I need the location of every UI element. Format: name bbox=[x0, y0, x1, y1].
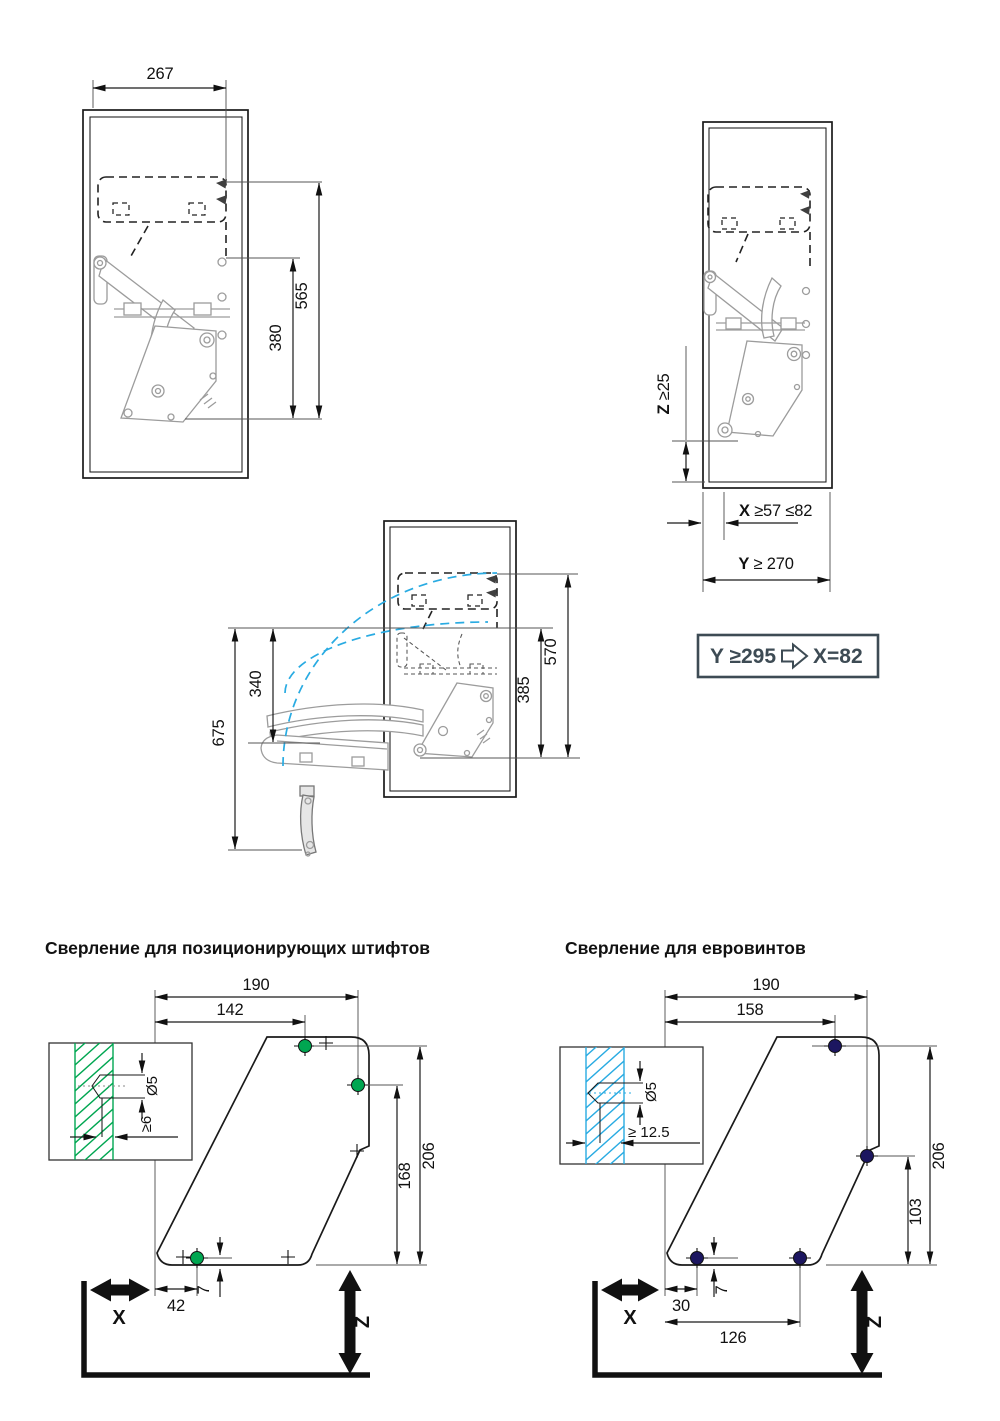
view-cabinet-closed: 267 565 380 bbox=[83, 65, 322, 478]
door-stop-wedge-icon bbox=[486, 575, 497, 584]
view-cabinet-open: 675 340 570 385 bbox=[210, 521, 580, 856]
screw-hole bbox=[824, 1036, 846, 1056]
door-folded-dashed bbox=[708, 187, 810, 266]
door-stop-wedge-icon bbox=[800, 206, 810, 215]
dim-label-190: 190 bbox=[243, 976, 270, 994]
dim-label-depth: ≥ 12.5 bbox=[628, 1124, 670, 1141]
dim-label-570: 570 bbox=[542, 639, 560, 666]
mechanism-ghost-dashed bbox=[397, 633, 497, 674]
door-stop-wedge-icon bbox=[216, 179, 227, 189]
mechanism-plate bbox=[414, 683, 493, 757]
dim-label-158: 158 bbox=[737, 1001, 764, 1019]
dim-label-103: 103 bbox=[907, 1199, 925, 1226]
dim-clearance-z: Z ≥25 bbox=[655, 346, 738, 482]
dim-label-dia: Ø5 bbox=[643, 1082, 660, 1102]
dim-label-126: 126 bbox=[720, 1329, 747, 1347]
dim-label-206: 206 bbox=[930, 1143, 948, 1170]
view-niche-requirements: Z ≥25 X ≥57 ≤82 Y ≥ 270 bbox=[655, 122, 832, 592]
door-folded-dashed bbox=[98, 177, 227, 258]
dim-label-190: 190 bbox=[753, 976, 780, 994]
door-open bbox=[261, 735, 388, 770]
dim-label-y: Y ≥ 270 bbox=[738, 555, 793, 573]
x-distance-arrow-icon bbox=[90, 1279, 150, 1302]
door-stop-wedge-icon bbox=[800, 190, 810, 199]
dim-label-380: 380 bbox=[267, 325, 285, 352]
cabinet-outer bbox=[83, 110, 248, 478]
door-stop-wedge-icon bbox=[486, 589, 497, 598]
axis-label-x: X bbox=[112, 1307, 126, 1329]
section-title-euro: Сверление для евровинтов bbox=[565, 938, 806, 958]
technical-drawing-page: 267 565 380 bbox=[0, 0, 1000, 1421]
x-distance-arrow-icon bbox=[601, 1279, 659, 1302]
dim-label-168: 168 bbox=[396, 1163, 414, 1190]
formula-box: Y ≥295 X=82 bbox=[698, 635, 878, 677]
dim-label-142: 142 bbox=[217, 1001, 244, 1019]
handle-arm bbox=[300, 786, 316, 856]
dim-label-z: Z ≥25 bbox=[655, 373, 673, 414]
section-title-pins: Сверление для позиционирующих штифтов bbox=[45, 938, 430, 958]
dim-label-206: 206 bbox=[420, 1143, 438, 1170]
dim-distance-x: X ≥57 ≤82 bbox=[667, 492, 812, 540]
lift-mechanism bbox=[704, 271, 810, 437]
axis-label-z: Z bbox=[352, 1316, 374, 1328]
plus-mark-icon bbox=[350, 1144, 364, 1158]
dim-width-267: 267 bbox=[93, 65, 226, 180]
axis-label-x: X bbox=[623, 1307, 637, 1329]
dim-label-7: 7 bbox=[195, 1285, 213, 1294]
pin-hole bbox=[294, 1036, 314, 1056]
plus-mark-icon bbox=[281, 1250, 295, 1264]
pin-holes bbox=[176, 1036, 368, 1268]
lift-mechanism bbox=[94, 256, 230, 422]
drill-detail-inset-euro: Ø5 ≥ 12.5 bbox=[560, 1022, 703, 1199]
dim-label-7: 7 bbox=[713, 1285, 731, 1294]
dim-label-30: 30 bbox=[672, 1297, 690, 1315]
dim-label-675: 675 bbox=[210, 720, 228, 747]
dim-label-42: 42 bbox=[167, 1297, 185, 1315]
travel-arc-inner bbox=[285, 622, 488, 693]
axis-label-z: Z bbox=[864, 1316, 886, 1328]
drill-template-euro: Сверление для евровинтов 190 158 bbox=[560, 938, 948, 1375]
pin-hole bbox=[347, 1075, 368, 1095]
drill-detail-inset-pins: Ø5 ≥6 bbox=[49, 1018, 192, 1195]
screw-hole bbox=[856, 1146, 878, 1166]
plus-mark-icon bbox=[319, 1036, 333, 1050]
door-stop-wedge-icon bbox=[216, 195, 227, 205]
door-folded-dashed bbox=[398, 573, 497, 629]
dim-label-267: 267 bbox=[147, 65, 174, 83]
dim-label-565: 565 bbox=[293, 283, 311, 310]
dim-label-depth: ≥6 bbox=[138, 1116, 155, 1133]
drill-template-pins: Сверление для позиционирующих штифтов 19… bbox=[45, 938, 438, 1375]
dim-label-x: X ≥57 ≤82 bbox=[739, 502, 812, 520]
dim-label-385: 385 bbox=[515, 677, 533, 704]
lift-mechanism-drawing: 267 565 380 bbox=[0, 0, 1000, 1421]
euro-screw-holes bbox=[686, 1036, 878, 1268]
plus-mark-icon bbox=[176, 1250, 190, 1264]
formula-result: X=82 bbox=[813, 645, 863, 668]
dim-label-dia: Ø5 bbox=[144, 1076, 161, 1096]
formula-condition: Y ≥295 bbox=[710, 645, 776, 668]
dim-label-340: 340 bbox=[247, 671, 265, 698]
